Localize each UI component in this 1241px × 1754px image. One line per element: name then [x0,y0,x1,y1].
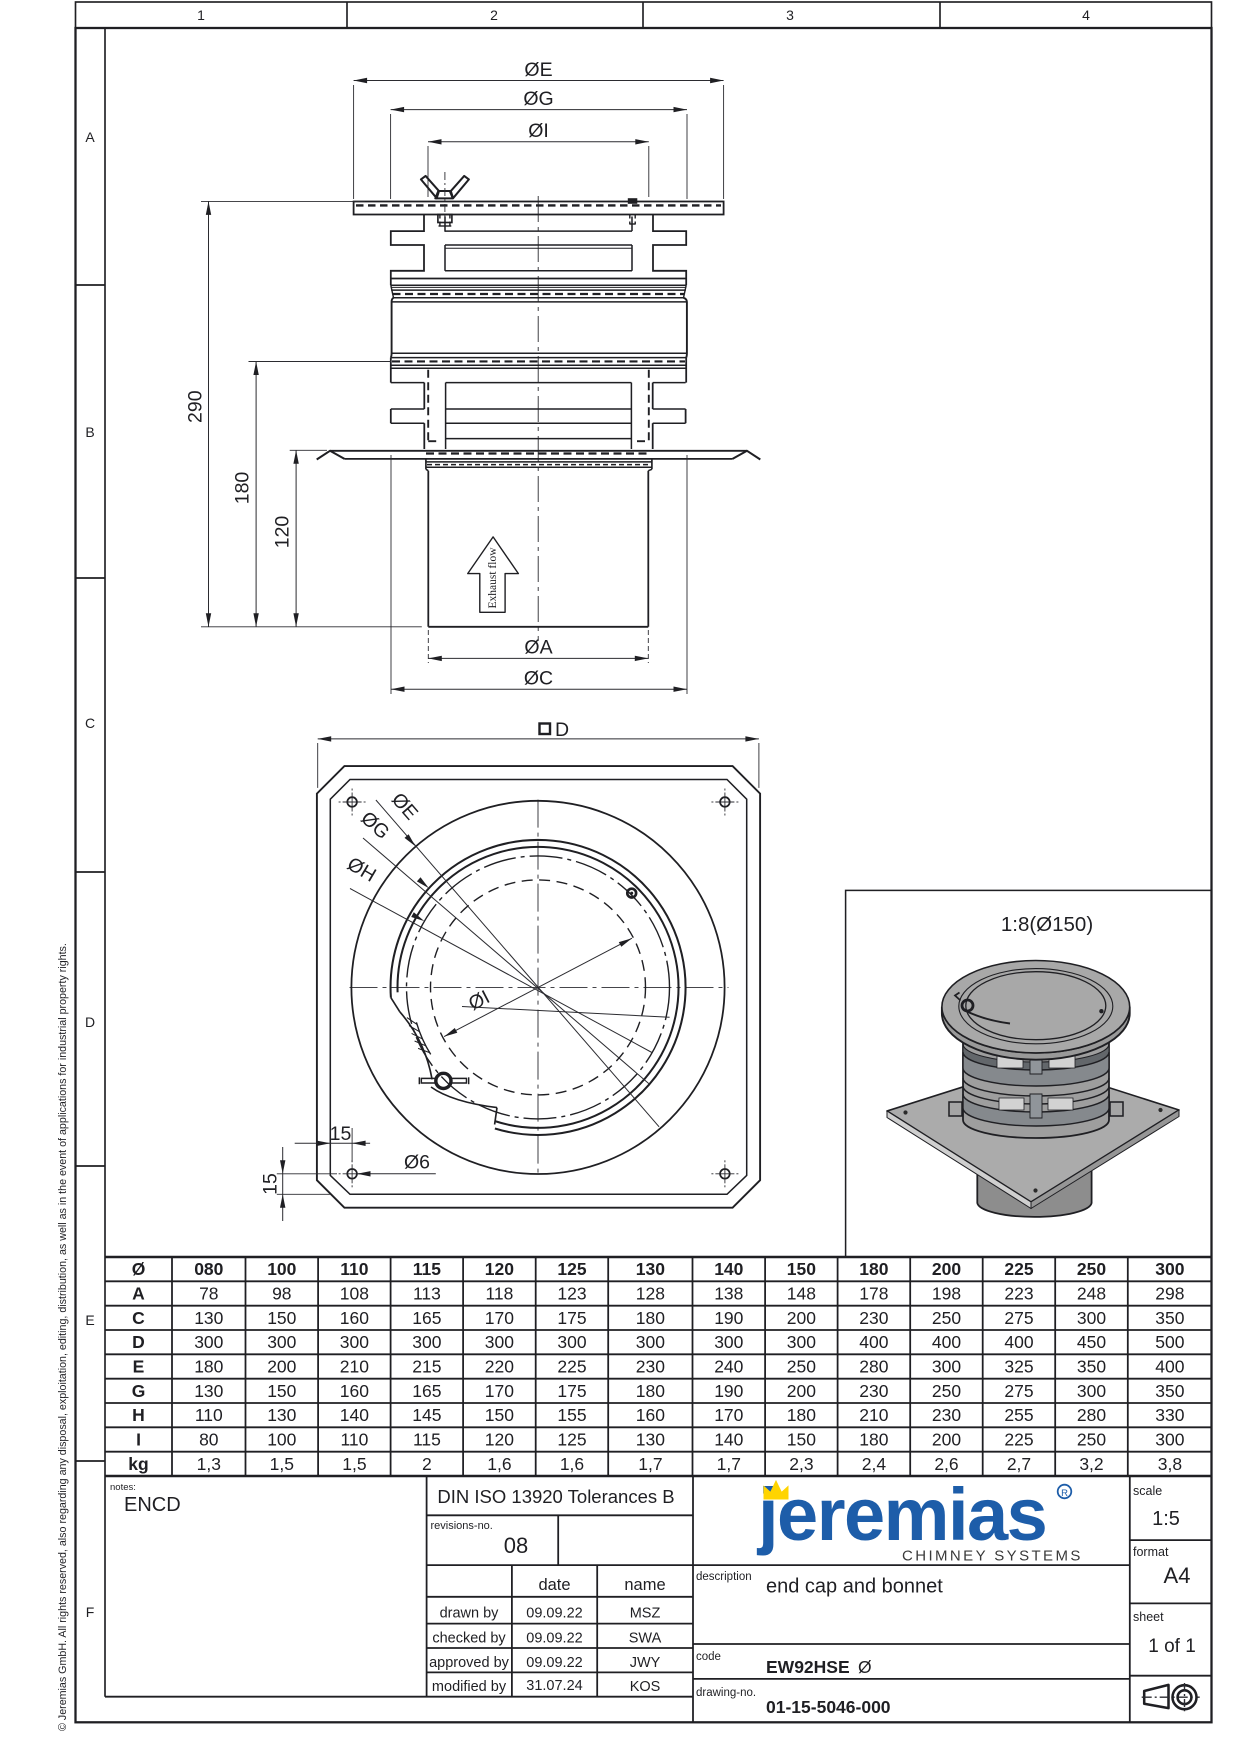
svg-text:200: 200 [787,1381,816,1401]
svg-text:130: 130 [267,1405,296,1425]
svg-text:300: 300 [1155,1430,1184,1450]
svg-text:I: I [136,1430,141,1450]
svg-text:Ø: Ø [132,1259,146,1279]
svg-text:225: 225 [1004,1430,1033,1450]
svg-text:125: 125 [557,1430,586,1450]
svg-text:F: F [86,1604,95,1620]
svg-text:3: 3 [786,7,794,23]
svg-text:08: 08 [504,1533,528,1558]
svg-text:1,6: 1,6 [560,1454,584,1474]
svg-text:300: 300 [340,1332,369,1352]
svg-text:ØA: ØA [524,637,552,659]
svg-text:180: 180 [194,1357,223,1377]
svg-text:110: 110 [340,1430,368,1450]
svg-text:300: 300 [485,1332,514,1352]
svg-text:300: 300 [412,1332,441,1352]
svg-text:2,6: 2,6 [934,1454,958,1474]
svg-text:2,7: 2,7 [1007,1454,1031,1474]
svg-text:170: 170 [485,1308,514,1328]
svg-text:180: 180 [636,1381,665,1401]
svg-text:D: D [85,1014,95,1030]
svg-text:140: 140 [340,1405,369,1425]
svg-text:175: 175 [557,1381,586,1401]
svg-text:160: 160 [340,1308,369,1328]
svg-text:MSZ: MSZ [630,1606,661,1622]
svg-text:280: 280 [859,1357,888,1377]
svg-text:C: C [85,715,95,731]
svg-text:250: 250 [932,1381,961,1401]
svg-text:kg: kg [128,1454,148,1474]
svg-text:date: date [538,1576,570,1594]
svg-text:1,5: 1,5 [342,1454,366,1474]
svg-text:280: 280 [1077,1405,1106,1425]
svg-text:name: name [624,1576,665,1594]
svg-text:200: 200 [267,1357,296,1377]
svg-text:A4: A4 [1164,1563,1191,1588]
svg-text:Ø: Ø [858,1657,872,1677]
svg-text:ØE: ØE [524,59,552,81]
svg-text:300: 300 [714,1332,743,1352]
svg-text:290: 290 [185,390,207,423]
svg-text:225: 225 [1004,1259,1033,1279]
svg-text:210: 210 [340,1357,369,1377]
svg-text:1,7: 1,7 [638,1454,662,1474]
svg-text:revisions-no.: revisions-no. [431,1520,493,1532]
svg-text:300: 300 [267,1332,296,1352]
svg-text:400: 400 [1004,1332,1033,1352]
svg-text:D: D [132,1332,145,1352]
svg-text:300: 300 [557,1332,586,1352]
svg-text:78: 78 [199,1284,218,1304]
svg-text:KOS: KOS [630,1679,661,1695]
svg-text:500: 500 [1155,1332,1184,1352]
svg-text:ØC: ØC [524,668,553,690]
svg-text:2,3: 2,3 [789,1454,813,1474]
svg-text:R: R [1061,1488,1068,1499]
svg-text:180: 180 [232,472,254,505]
svg-text:D: D [555,719,569,741]
svg-text:description: description [696,1571,752,1583]
svg-text:1,6: 1,6 [487,1454,511,1474]
svg-text:Exhaust flow: Exhaust flow [487,547,499,609]
svg-text:4: 4 [1082,7,1090,23]
svg-text:checked by: checked by [432,1631,506,1647]
svg-text:123: 123 [557,1284,586,1304]
svg-text:100: 100 [267,1259,296,1279]
svg-text:190: 190 [714,1308,743,1328]
svg-text:130: 130 [636,1430,665,1450]
svg-text:150: 150 [485,1405,514,1425]
svg-text:end cap and bonnet: end cap and bonnet [766,1576,943,1598]
svg-text:350: 350 [1155,1381,1184,1401]
svg-text:120: 120 [485,1430,514,1450]
svg-text:230: 230 [859,1308,888,1328]
svg-text:170: 170 [714,1405,743,1425]
svg-text:150: 150 [267,1381,296,1401]
svg-text:1:8(Ø150): 1:8(Ø150) [1001,913,1093,936]
svg-text:09.09.22: 09.09.22 [526,1631,582,1647]
svg-text:165: 165 [412,1381,441,1401]
svg-text:113: 113 [413,1284,441,1304]
svg-text:400: 400 [859,1332,888,1352]
svg-text:1,3: 1,3 [197,1454,221,1474]
svg-text:200: 200 [787,1308,816,1328]
svg-text:248: 248 [1077,1284,1106,1304]
svg-text:CHIMNEY SYSTEMS: CHIMNEY SYSTEMS [902,1548,1083,1565]
svg-text:300: 300 [636,1332,665,1352]
svg-text:09.09.22: 09.09.22 [526,1655,582,1671]
svg-text:© Jeremias GmbH. All rights re: © Jeremias GmbH. All rights reserved, al… [57,943,69,1731]
svg-text:180: 180 [859,1430,888,1450]
svg-text:80: 80 [199,1430,219,1450]
svg-text:165: 165 [412,1308,441,1328]
svg-text:108: 108 [340,1284,369,1304]
svg-text:ØI: ØI [465,986,493,1015]
svg-text:240: 240 [714,1357,743,1377]
svg-text:300: 300 [1155,1259,1184,1279]
svg-text:1: 1 [197,7,205,23]
svg-text:220: 220 [485,1357,514,1377]
svg-text:230: 230 [636,1357,665,1377]
svg-text:B: B [85,424,94,440]
svg-text:330: 330 [1155,1405,1184,1425]
svg-text:080: 080 [194,1259,223,1279]
svg-text:ENCD: ENCD [124,1494,181,1516]
svg-text:scale: scale [1133,1484,1162,1498]
svg-text:drawing-no.: drawing-no. [696,1687,756,1699]
svg-text:ØI: ØI [528,120,549,142]
svg-text:100: 100 [267,1430,296,1450]
svg-text:300: 300 [1077,1381,1106,1401]
svg-text:EW92HSE: EW92HSE [766,1657,850,1677]
svg-text:148: 148 [787,1284,816,1304]
svg-text:400: 400 [1155,1357,1184,1377]
svg-text:155: 155 [557,1405,586,1425]
svg-text:255: 255 [1004,1405,1033,1425]
svg-text:110: 110 [340,1259,368,1279]
svg-text:3,2: 3,2 [1079,1454,1103,1474]
svg-text:modified by: modified by [432,1679,507,1695]
svg-text:approved by: approved by [429,1655,510,1671]
svg-text:JWY: JWY [630,1655,661,1671]
svg-text:190: 190 [714,1381,743,1401]
svg-text:140: 140 [714,1259,743,1279]
svg-text:325: 325 [1004,1357,1033,1377]
svg-text:350: 350 [1077,1357,1106,1377]
svg-text:130: 130 [194,1381,223,1401]
svg-text:400: 400 [932,1332,961,1352]
svg-text:180: 180 [859,1259,888,1279]
svg-text:G: G [132,1381,146,1401]
svg-text:125: 125 [557,1259,586,1279]
svg-text:300: 300 [932,1357,961,1377]
svg-text:3,8: 3,8 [1158,1454,1182,1474]
svg-text:1,7: 1,7 [717,1454,741,1474]
svg-text:SWA: SWA [629,1631,662,1647]
svg-text:1:5: 1:5 [1152,1508,1180,1530]
svg-text:300: 300 [194,1332,223,1352]
svg-text:jeremias: jeremias [756,1473,1046,1556]
svg-text:2: 2 [422,1454,432,1474]
svg-text:198: 198 [932,1284,961,1304]
svg-text:31.07.24: 31.07.24 [526,1678,582,1694]
svg-text:115: 115 [413,1259,441,1279]
svg-text:ØG: ØG [356,807,393,844]
svg-text:350: 350 [1155,1308,1184,1328]
svg-text:ØH: ØH [343,853,379,887]
svg-text:160: 160 [636,1405,665,1425]
svg-text:225: 225 [557,1357,586,1377]
svg-text:118: 118 [485,1284,513,1304]
svg-text:120: 120 [485,1259,514,1279]
svg-text:09.09.22: 09.09.22 [526,1606,582,1622]
svg-text:DIN ISO 13920 Tolerances B: DIN ISO 13920 Tolerances B [437,1486,674,1507]
svg-text:145: 145 [412,1405,441,1425]
svg-text:275: 275 [1004,1381,1033,1401]
svg-text:ØG: ØG [523,88,553,110]
svg-text:200: 200 [932,1259,961,1279]
svg-text:215: 215 [412,1357,441,1377]
svg-text:300: 300 [1077,1308,1106,1328]
svg-text:180: 180 [787,1405,816,1425]
svg-text:275: 275 [1004,1308,1033,1328]
svg-text:115: 115 [413,1430,441,1450]
svg-text:15: 15 [330,1123,352,1145]
svg-text:200: 200 [932,1430,961,1450]
svg-text:223: 223 [1004,1284,1033,1304]
svg-text:450: 450 [1077,1332,1106,1352]
svg-text:150: 150 [787,1259,816,1279]
svg-text:140: 140 [714,1430,743,1450]
svg-text:175: 175 [557,1308,586,1328]
svg-text:E: E [85,1312,94,1328]
svg-text:210: 210 [859,1405,888,1425]
svg-text:138: 138 [714,1284,743,1304]
svg-text:250: 250 [787,1357,816,1377]
svg-text:298: 298 [1155,1284,1184,1304]
svg-text:format: format [1133,1545,1169,1559]
svg-text:250: 250 [1077,1259,1106,1279]
svg-text:150: 150 [267,1308,296,1328]
svg-text:C: C [132,1308,145,1328]
svg-text:Ø6: Ø6 [404,1152,430,1174]
svg-text:1 of 1: 1 of 1 [1148,1636,1196,1657]
svg-text:notes:: notes: [110,1482,136,1493]
svg-text:code: code [696,1651,721,1663]
svg-text:A: A [85,129,95,145]
svg-text:01-15-5046-000: 01-15-5046-000 [766,1697,891,1717]
svg-text:1,5: 1,5 [270,1454,294,1474]
svg-text:230: 230 [859,1381,888,1401]
svg-text:250: 250 [1077,1430,1106,1450]
svg-text:2,4: 2,4 [862,1454,887,1474]
svg-text:150: 150 [787,1430,816,1450]
svg-text:H: H [132,1405,145,1425]
svg-text:128: 128 [636,1284,665,1304]
svg-text:178: 178 [859,1284,888,1304]
svg-text:A: A [132,1284,145,1304]
svg-text:15: 15 [260,1173,282,1195]
svg-text:120: 120 [272,516,294,549]
svg-text:180: 180 [636,1308,665,1328]
svg-text:E: E [133,1357,145,1377]
svg-text:160: 160 [340,1381,369,1401]
svg-text:98: 98 [272,1284,291,1304]
svg-text:2: 2 [490,7,498,23]
svg-text:230: 230 [932,1405,961,1425]
svg-text:130: 130 [636,1259,665,1279]
svg-text:drawn by: drawn by [440,1606,500,1622]
svg-text:sheet: sheet [1133,1610,1164,1624]
svg-text:300: 300 [787,1332,816,1352]
svg-text:130: 130 [194,1308,223,1328]
svg-text:110: 110 [195,1405,223,1425]
svg-text:250: 250 [932,1308,961,1328]
svg-text:170: 170 [485,1381,514,1401]
